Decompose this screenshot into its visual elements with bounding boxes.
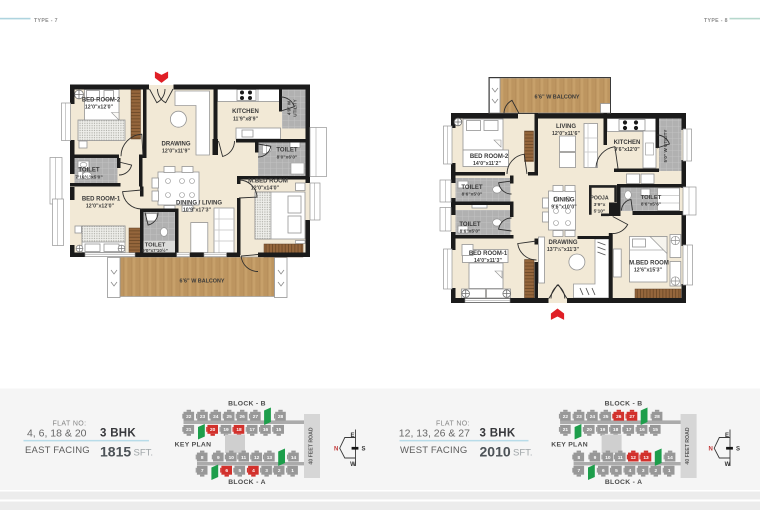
svg-text:5’0” W UTILITY: 5’0” W UTILITY [663,130,668,163]
svg-text:26: 26 [240,414,246,420]
svg-text:POOJA: POOJA [590,196,608,202]
svg-text:19: 19 [223,427,229,433]
svg-text:4’0” W: 4’0” W [287,100,292,115]
svg-text:3’9”x: 3’9”x [594,202,606,208]
svg-text:24: 24 [590,414,596,420]
svg-text:2: 2 [278,468,281,474]
svg-text:N: N [709,447,713,453]
svg-text:14’0”x11’3”: 14’0”x11’3” [474,258,502,264]
svg-text:14: 14 [291,455,297,461]
svg-text:W: W [350,462,356,468]
svg-text:LIVING: LIVING [556,124,576,130]
svg-text:6’6” W BALCONY: 6’6” W BALCONY [180,279,225,285]
svg-text:1: 1 [291,468,294,474]
svg-text:DINING / LIVING: DINING / LIVING [176,201,222,207]
svg-text:22: 22 [563,414,569,420]
svg-text:E: E [725,433,729,439]
svg-text:KITCHEN: KITCHEN [614,140,641,146]
svg-text:23: 23 [576,414,582,420]
svg-text:2: 2 [654,468,657,474]
svg-text:BLOCK - A: BLOCK - A [605,479,643,486]
svg-text:7’10½”x5’0”: 7’10½”x5’0” [75,173,103,180]
svg-text:40 FEET ROAD: 40 FEET ROAD [308,427,314,464]
svg-text:3: 3 [265,468,268,474]
svg-text:DINING: DINING [554,198,575,204]
svg-text:8’6”x5’0”: 8’6”x5’0” [460,229,481,235]
svg-text:12: 12 [631,455,637,461]
svg-text:12’0”x14’0”: 12’0”x14’0” [251,186,280,192]
svg-text:BED ROOM-1: BED ROOM-1 [469,251,508,257]
svg-text:13: 13 [267,455,273,461]
svg-text:17: 17 [250,427,256,433]
svg-text:TOILET: TOILET [459,222,481,228]
svg-text:26: 26 [616,414,622,420]
svg-text:BLOCK - B: BLOCK - B [228,401,266,408]
svg-text:UTILITY: UTILITY [293,99,298,116]
svg-text:4: 4 [629,468,632,474]
svg-text:12’0”x11’9”: 12’0”x11’9” [162,149,190,155]
svg-text:13: 13 [643,455,649,461]
svg-text:27: 27 [253,414,259,420]
svg-text:8’6”x5’6”: 8’6”x5’6” [641,202,661,207]
svg-text:6: 6 [602,468,605,474]
svg-text:15: 15 [653,427,659,433]
svg-text:24: 24 [213,414,219,420]
svg-text:BED ROOM-1: BED ROOM-1 [82,197,121,203]
svg-text:W: W [725,462,731,468]
svg-text:22: 22 [186,414,192,420]
svg-text:BLOCK - A: BLOCK - A [228,479,266,486]
svg-text:10: 10 [229,455,235,461]
svg-text:BED ROOM-2: BED ROOM-2 [470,154,509,160]
svg-text:6’6” W BALCONY: 6’6” W BALCONY [535,95,580,101]
svg-text:8’6”x5’0”: 8’6”x5’0” [462,192,483,198]
svg-text:8: 8 [577,455,580,461]
svg-text:9: 9 [217,455,220,461]
svg-text:3 BHK: 3 BHK [480,427,516,439]
svg-text:18: 18 [613,427,619,433]
svg-text:M.BED ROOM: M.BED ROOM [248,179,288,185]
svg-text:20: 20 [210,427,216,433]
svg-text:TOILET: TOILET [78,168,100,174]
svg-text:1: 1 [668,468,671,474]
svg-text:28: 28 [278,414,284,420]
svg-text:TOILET: TOILET [641,195,662,201]
svg-text:11: 11 [618,455,623,461]
svg-text:28: 28 [654,414,660,420]
svg-text:TYPE - 8: TYPE - 8 [704,18,728,24]
svg-text:12, 13, 26 & 27: 12, 13, 26 & 27 [399,427,470,439]
svg-text:TOILET: TOILET [276,148,298,154]
svg-text:3 BHK: 3 BHK [100,427,136,439]
svg-text:M.BED ROOM: M.BED ROOM [629,261,669,267]
svg-text:5: 5 [615,468,618,474]
svg-text:8: 8 [201,455,204,461]
svg-text:10: 10 [605,455,611,461]
svg-text:S: S [736,447,740,453]
svg-text:3: 3 [642,468,645,474]
svg-text:N: N [334,447,338,453]
svg-text:18: 18 [236,427,242,433]
svg-text:14: 14 [667,455,673,461]
svg-text:TOILET: TOILET [461,185,483,191]
svg-text:21: 21 [186,427,192,433]
svg-text:BLOCK - B: BLOCK - B [605,401,643,408]
svg-text:16: 16 [639,427,645,433]
svg-text:9’6”x10’0”: 9’6”x10’0” [551,205,577,211]
svg-text:20: 20 [587,427,593,433]
svg-text:2010: 2010 [480,444,511,460]
svg-text:12: 12 [254,455,260,461]
svg-text:8’0”x6’0”: 8’0”x6’0” [277,154,298,160]
svg-text:11: 11 [241,455,246,461]
svg-text:7: 7 [201,468,204,474]
svg-text:16: 16 [263,427,269,433]
svg-text:14’0”x11’2”: 14’0”x11’2” [473,161,501,167]
svg-text:12’0”x12’0”: 12’0”x12’0” [85,105,114,111]
svg-text:9’6”x12’0”: 9’6”x12’0” [614,147,640,153]
svg-text:1815: 1815 [100,444,131,460]
svg-text:40 FEET ROAD: 40 FEET ROAD [685,427,691,464]
svg-text:KITCHEN: KITCHEN [232,109,259,115]
svg-text:25: 25 [603,414,609,420]
svg-text:7: 7 [577,468,580,474]
svg-text:4: 4 [252,468,255,474]
svg-text:KEY PLAN: KEY PLAN [551,442,588,449]
svg-text:6: 6 [225,468,228,474]
svg-text:21: 21 [563,427,569,433]
svg-text:19: 19 [600,427,606,433]
svg-text:17: 17 [626,427,632,433]
svg-text:S: S [361,447,365,453]
svg-text:WEST FACING: WEST FACING [400,445,467,456]
svg-text:SFT.: SFT. [134,448,154,459]
svg-text:EAST FACING: EAST FACING [25,445,90,456]
svg-text:5’10”: 5’10” [594,209,606,215]
svg-text:BED ROOM-2: BED ROOM-2 [82,98,121,104]
svg-text:12’6”x15’3”: 12’6”x15’3” [634,268,663,274]
svg-text:E: E [350,433,354,439]
svg-text:15: 15 [276,427,282,433]
svg-text:10’9”x17’3”: 10’9”x17’3” [183,208,212,214]
svg-text:9’0”x7’10½”: 9’0”x7’10½” [142,247,168,253]
svg-text:SFT.: SFT. [513,448,533,459]
svg-text:12’0”x12’0”: 12’0”x12’0” [86,204,115,210]
svg-text:4, 6, 18 & 20: 4, 6, 18 & 20 [27,427,87,439]
svg-text:11’9”x8’9”: 11’9”x8’9” [233,117,258,123]
svg-text:25: 25 [227,414,233,420]
svg-text:12’0”x11’6”: 12’0”x11’6” [552,131,580,137]
svg-text:TYPE - 7: TYPE - 7 [34,18,58,24]
svg-text:DRAWING: DRAWING [549,240,578,246]
svg-text:13’7½”x11’3”: 13’7½”x11’3” [547,246,580,253]
svg-text:23: 23 [200,414,206,420]
svg-text:KEY PLAN: KEY PLAN [175,442,212,449]
svg-text:9: 9 [594,455,597,461]
svg-text:DRAWING: DRAWING [162,142,191,148]
svg-text:5: 5 [238,468,241,474]
svg-text:27: 27 [629,414,635,420]
